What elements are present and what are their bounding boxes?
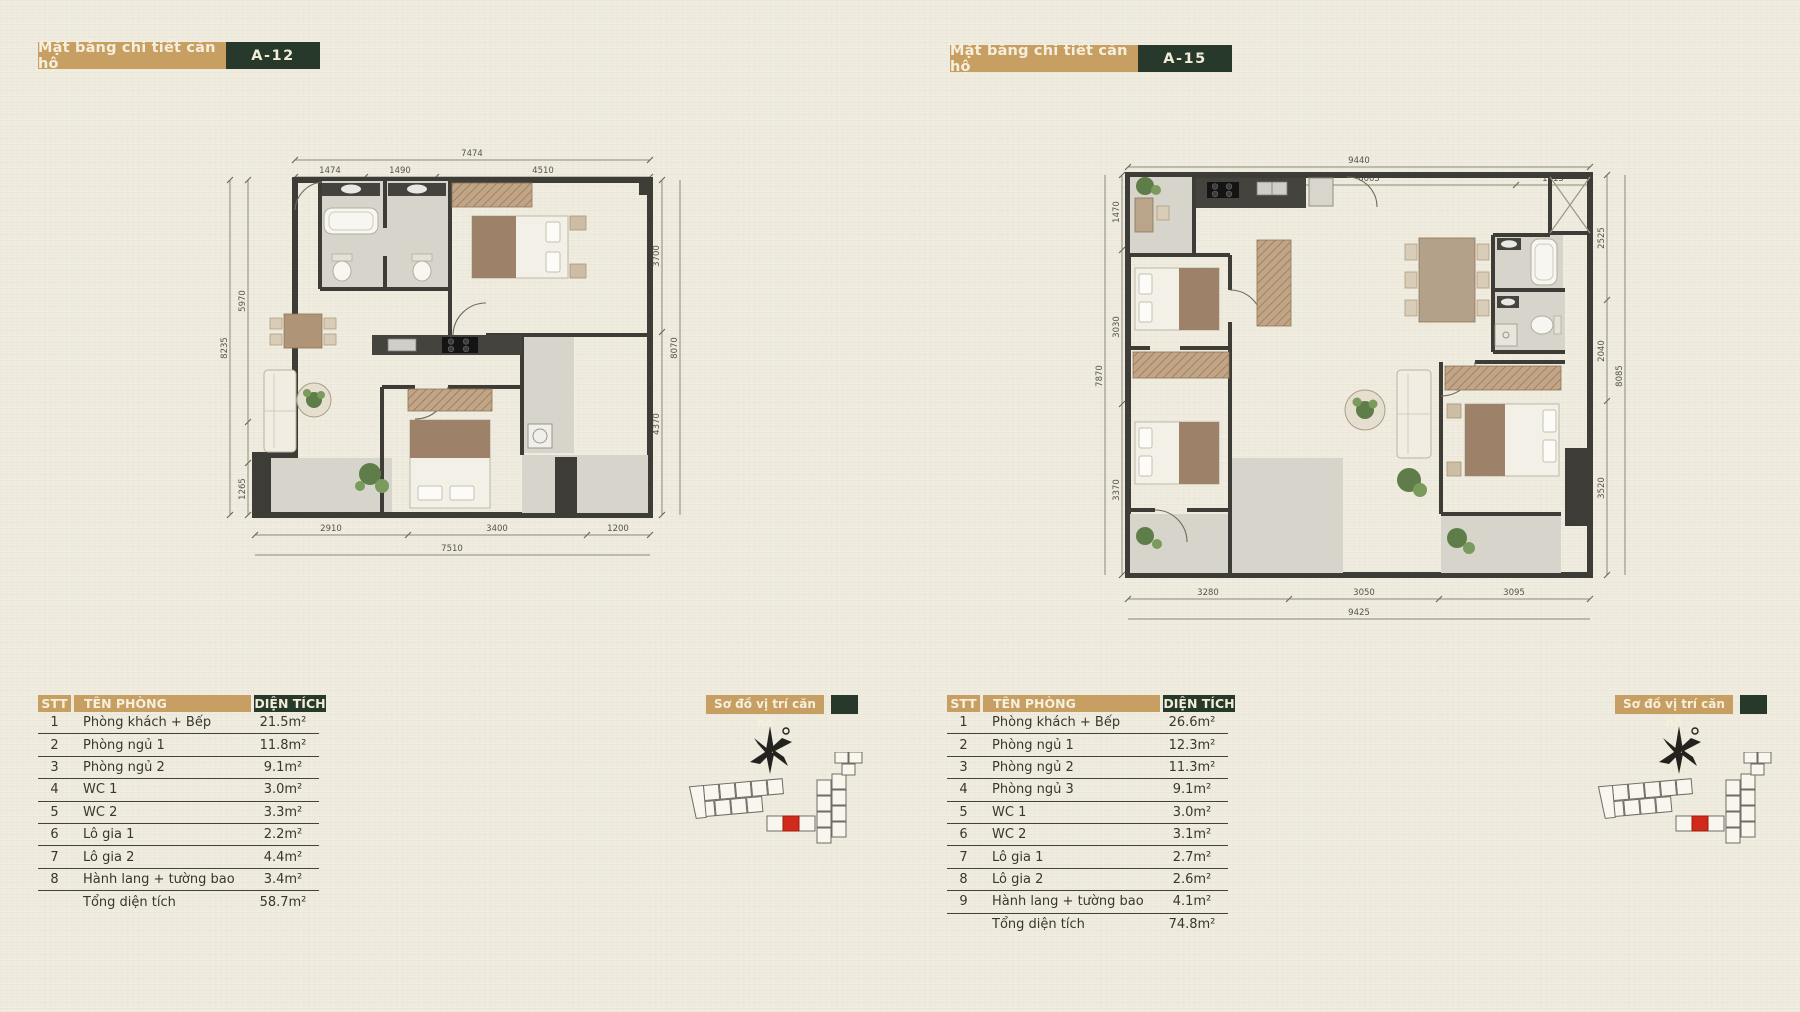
unit-code-badge: A-15 [1138, 45, 1232, 72]
svg-text:8070: 8070 [670, 337, 680, 359]
kitchen-counter-icon [1196, 178, 1333, 208]
svg-text:7870: 7870 [1095, 365, 1105, 387]
location-green-box [1740, 695, 1767, 714]
table-row: 8Hành lang + tường bao3.4m² [38, 869, 319, 891]
dining-table-icon [270, 314, 336, 348]
svg-text:3520: 3520 [1597, 477, 1607, 499]
unit-code-badge: A-12 [226, 42, 320, 69]
location-label: Sơ đồ vị trí căn hộ [706, 695, 824, 714]
svg-text:1490: 1490 [389, 166, 411, 176]
svg-text:2910: 2910 [320, 524, 342, 534]
header-stt: STT [38, 695, 71, 712]
bed-icon [1447, 404, 1559, 476]
svg-text:3700: 3700 [652, 245, 662, 267]
unit-header-a15: Mặt bằng chi tiết căn hộ A-15 [950, 45, 1232, 72]
svg-text:5970: 5970 [238, 290, 248, 312]
kitchen-counter-icon [372, 335, 522, 355]
svg-text:8085: 8085 [1615, 365, 1625, 387]
location-badge-a12: Sơ đồ vị trí căn hộ [706, 695, 858, 714]
svg-text:7474: 7474 [461, 149, 483, 159]
fridge-icon [1309, 178, 1333, 206]
apartment-a12 [255, 180, 650, 515]
table-row: 7Lô gia 12.7m² [947, 846, 1228, 868]
table-row: 8Lô gia 22.6m² [947, 869, 1228, 891]
room-table-a12: STT TÊN PHÒNG DIỆN TÍCH 1Phòng khách + B… [38, 695, 326, 914]
wardrobe-icon [1445, 366, 1561, 390]
svg-text:3095: 3095 [1503, 588, 1525, 598]
bed-icon [1135, 422, 1219, 484]
table-row: 2Phòng ngủ 111.8m² [38, 734, 319, 756]
washer-icon [528, 424, 552, 448]
table-row: 4Phòng ngủ 39.1m² [947, 779, 1228, 801]
svg-text:7510: 7510 [441, 544, 463, 554]
table-row: 9Hành lang + tường bao4.1m² [947, 891, 1228, 913]
table-row: 4WC 13.0m² [38, 779, 319, 801]
header-area: DIỆN TÍCH [1163, 695, 1235, 712]
sofa-icon [264, 370, 296, 452]
unit-location-marker [1692, 816, 1708, 831]
room-table-a15: STT TÊN PHÒNG DIỆN TÍCH 1Phòng khách + B… [947, 695, 1235, 936]
svg-text:8235: 8235 [220, 337, 230, 359]
column-block [255, 455, 271, 515]
svg-text:3400: 3400 [486, 524, 508, 534]
table-row: 2Phòng ngủ 112.3m² [947, 734, 1228, 756]
table-row: 7Lô gia 24.4m² [38, 846, 319, 868]
bed-icon [410, 420, 490, 508]
location-label: Sơ đồ vị trí căn hộ [1615, 695, 1733, 714]
unit-header-a12: Mặt bằng chi tiết căn hộ A-12 [38, 42, 320, 69]
site-plan-a15 [1594, 752, 1774, 852]
location-green-box [831, 695, 858, 714]
unit-header-label: Mặt bằng chi tiết căn hộ [950, 45, 1138, 72]
svg-text:9425: 9425 [1348, 608, 1370, 618]
corridor-zone [1231, 458, 1343, 573]
svg-text:1265: 1265 [238, 478, 248, 500]
header-name: TÊN PHÒNG [74, 695, 251, 712]
header-name: TÊN PHÒNG [983, 695, 1160, 712]
sofa-icon [1397, 370, 1431, 458]
wardrobe-icon [1257, 240, 1291, 326]
site-block-row [1598, 779, 1693, 819]
wardrobe-icon [408, 389, 492, 411]
table-row: 6WC 23.1m² [947, 824, 1228, 846]
svg-text:3370: 3370 [1112, 479, 1122, 501]
table-row: 6Lô gia 12.2m² [38, 824, 319, 846]
dining-table-icon [1405, 238, 1489, 322]
svg-text:2525: 2525 [1597, 227, 1607, 249]
header-stt: STT [947, 695, 980, 712]
table-row: 5WC 13.0m² [947, 802, 1228, 824]
wardrobe-icon [452, 183, 532, 207]
bed-icon [472, 216, 586, 278]
table-total-row: Tổng diện tích58.7m² [38, 891, 319, 913]
wardrobe-icon [1133, 352, 1229, 378]
location-badge-a15: Sơ đồ vị trí căn hộ [1615, 695, 1767, 714]
coffee-table-icon [297, 383, 331, 417]
svg-text:1474: 1474 [319, 166, 341, 176]
unit-header-label: Mặt bằng chi tiết căn hộ [38, 42, 226, 69]
table-row: 1Phòng khách + Bếp26.6m² [947, 712, 1228, 734]
table-row: 5WC 23.3m² [38, 802, 319, 824]
table-row: 3Phòng ngủ 29.1m² [38, 757, 319, 779]
column-block [555, 457, 577, 513]
header-area: DIỆN TÍCH [254, 695, 326, 712]
svg-text:3280: 3280 [1197, 588, 1219, 598]
svg-text:3050: 3050 [1353, 588, 1375, 598]
column-block [1565, 448, 1590, 526]
svg-text:4370: 4370 [652, 413, 662, 435]
table-row: 3Phòng ngủ 211.3m² [947, 757, 1228, 779]
site-plan-a12 [685, 752, 865, 852]
bed-icon [1135, 268, 1219, 330]
svg-text:1470: 1470 [1112, 201, 1122, 223]
table-header: STT TÊN PHÒNG DIỆN TÍCH [38, 695, 326, 712]
site-block-row [689, 779, 784, 819]
svg-text:3030: 3030 [1112, 316, 1122, 338]
svg-text:1200: 1200 [607, 524, 629, 534]
table-row: 1Phòng khách + Bếp21.5m² [38, 712, 319, 734]
floor-plan-a15: 9440 1920 6005 1515 7870 1470 3030 3370 … [1095, 140, 1645, 645]
svg-text:2040: 2040 [1597, 340, 1607, 362]
unit-location-marker [783, 816, 799, 831]
apartment-a15 [1128, 175, 1590, 575]
page-canvas: Mặt bằng chi tiết căn hộ A-12 7474 1474 … [0, 0, 1800, 1012]
svg-text:9440: 9440 [1348, 156, 1370, 166]
svg-text:4510: 4510 [532, 166, 554, 176]
coffee-table-icon [1345, 390, 1385, 430]
plant-icon [1397, 468, 1427, 497]
table-header: STT TÊN PHÒNG DIỆN TÍCH [947, 695, 1235, 712]
floor-plan-a12: 7474 1474 1490 4510 8235 5970 1265 3700 … [210, 130, 690, 570]
table-total-row: Tổng diện tích74.8m² [947, 914, 1228, 936]
